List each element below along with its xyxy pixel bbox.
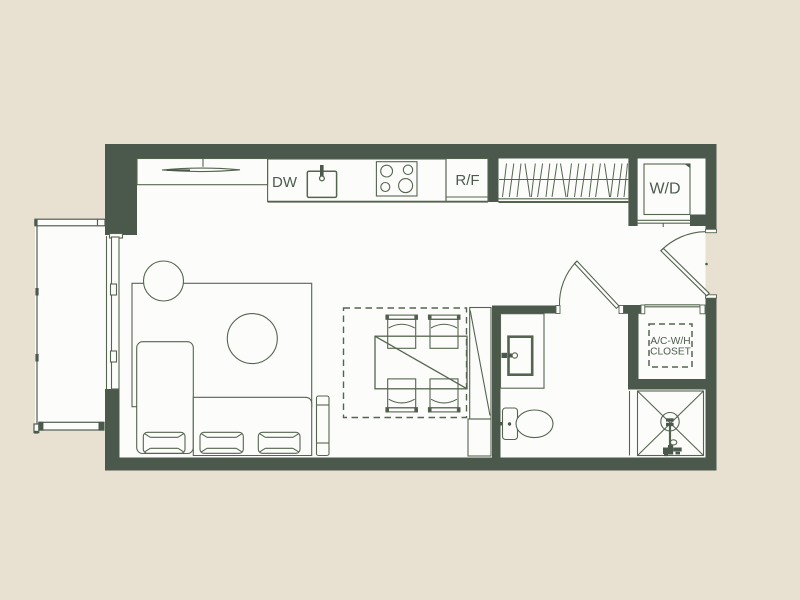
svg-text:CLOSET: CLOSET xyxy=(650,347,691,358)
svg-text:DW: DW xyxy=(272,174,298,191)
svg-text:R/F: R/F xyxy=(455,172,479,189)
svg-text:A/C-W/H: A/C-W/H xyxy=(650,336,690,347)
svg-text:W/D: W/D xyxy=(649,181,680,198)
